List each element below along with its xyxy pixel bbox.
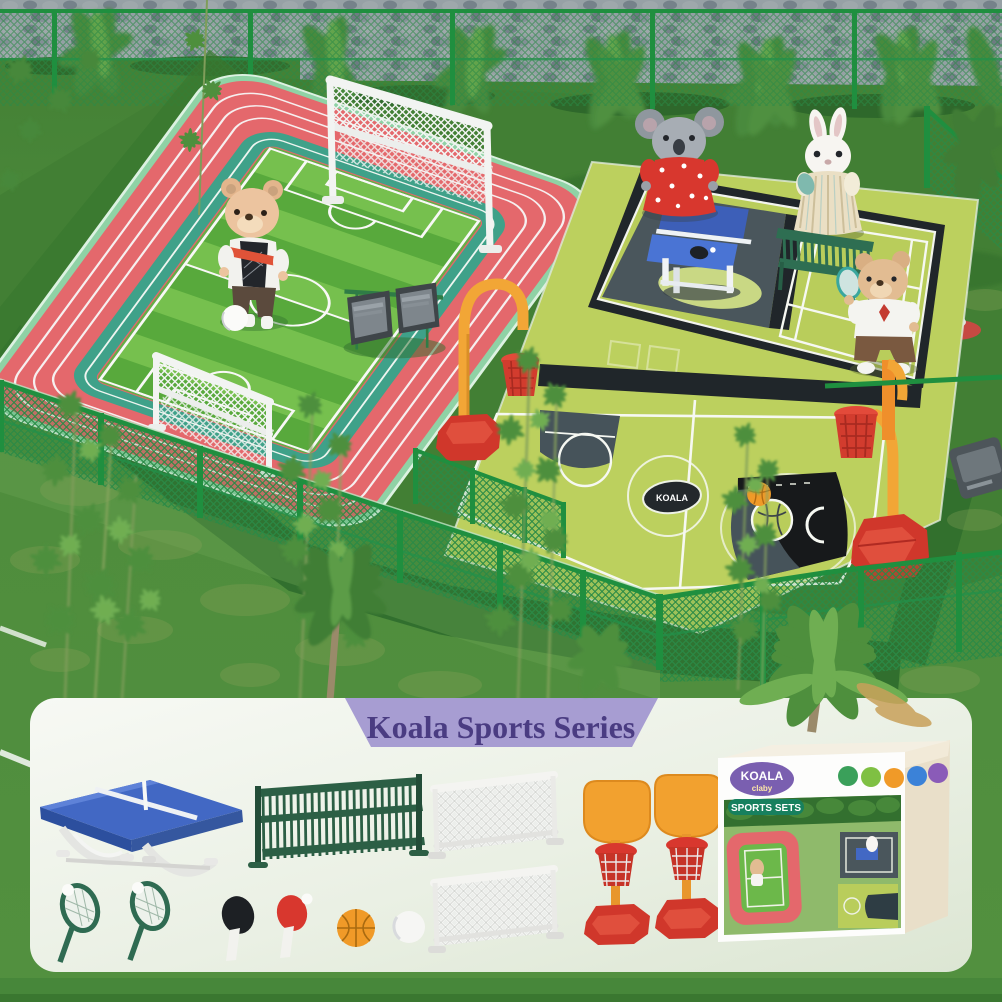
svg-text:SPORTS SETS: SPORTS SETS — [731, 803, 801, 814]
svg-text:KOALA: KOALA — [656, 493, 688, 503]
svg-text:KOALA: KOALA — [741, 769, 784, 783]
svg-text:Koala Sports Series: Koala Sports Series — [367, 709, 635, 745]
svg-text:claby: claby — [752, 784, 773, 793]
